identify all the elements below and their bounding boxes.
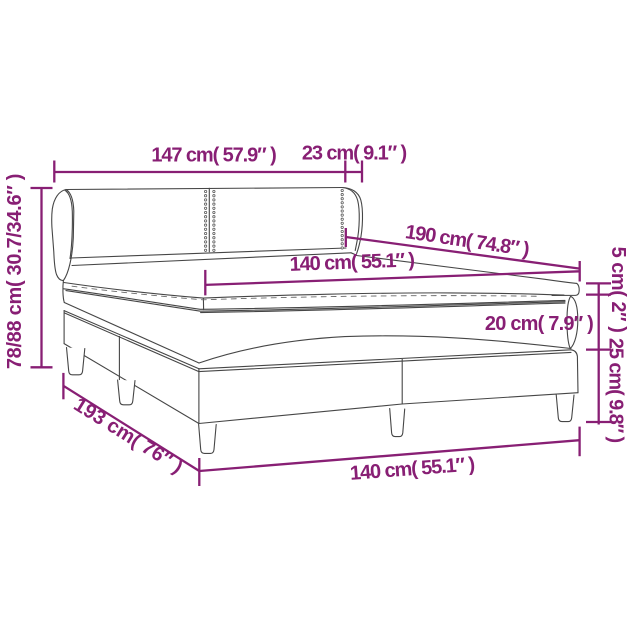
svg-text:5 cm( 2″ ): 5 cm( 2″ ): [607, 247, 629, 333]
svg-text:23 cm( 9.1″ ): 23 cm( 9.1″ ): [302, 143, 407, 165]
svg-text:78/88 cm( 30.7/34.6″ ): 78/88 cm( 30.7/34.6″ ): [4, 174, 26, 369]
svg-text:20 cm( 7.9″ ): 20 cm( 7.9″ ): [485, 313, 593, 335]
svg-text:25 cm( 9.8″ ): 25 cm( 9.8″ ): [605, 338, 627, 443]
svg-text:147 cm( 57.9″ ): 147 cm( 57.9″ ): [151, 145, 276, 167]
svg-text:140 cm( 55.1″ ): 140 cm( 55.1″ ): [289, 249, 414, 276]
